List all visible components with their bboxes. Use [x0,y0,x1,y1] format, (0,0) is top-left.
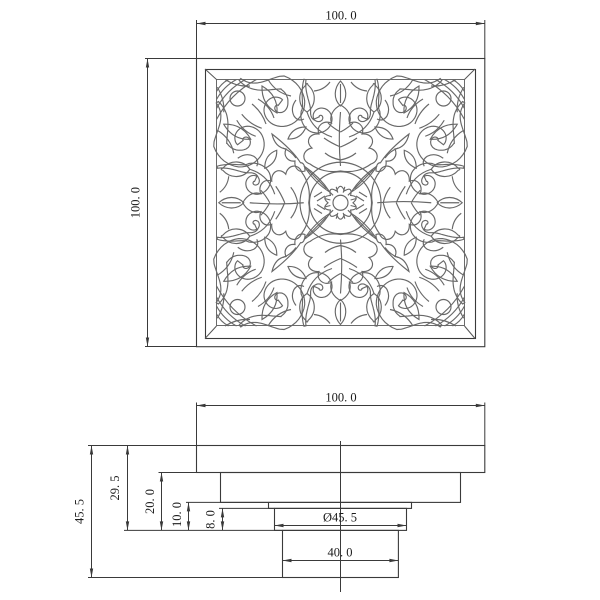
svg-text:45. 5: 45. 5 [73,499,87,524]
svg-text:100. 0: 100. 0 [325,391,356,405]
svg-text:8. 0: 8. 0 [204,510,218,529]
svg-text:29. 5: 29. 5 [108,476,122,501]
svg-text:40. 0: 40. 0 [328,546,353,560]
svg-text:Ø45. 5: Ø45. 5 [323,511,357,525]
svg-text:100. 0: 100. 0 [129,187,143,218]
svg-text:100. 0: 100. 0 [325,9,356,23]
svg-text:10. 0: 10. 0 [170,502,184,527]
svg-text:20. 0: 20. 0 [143,489,157,514]
